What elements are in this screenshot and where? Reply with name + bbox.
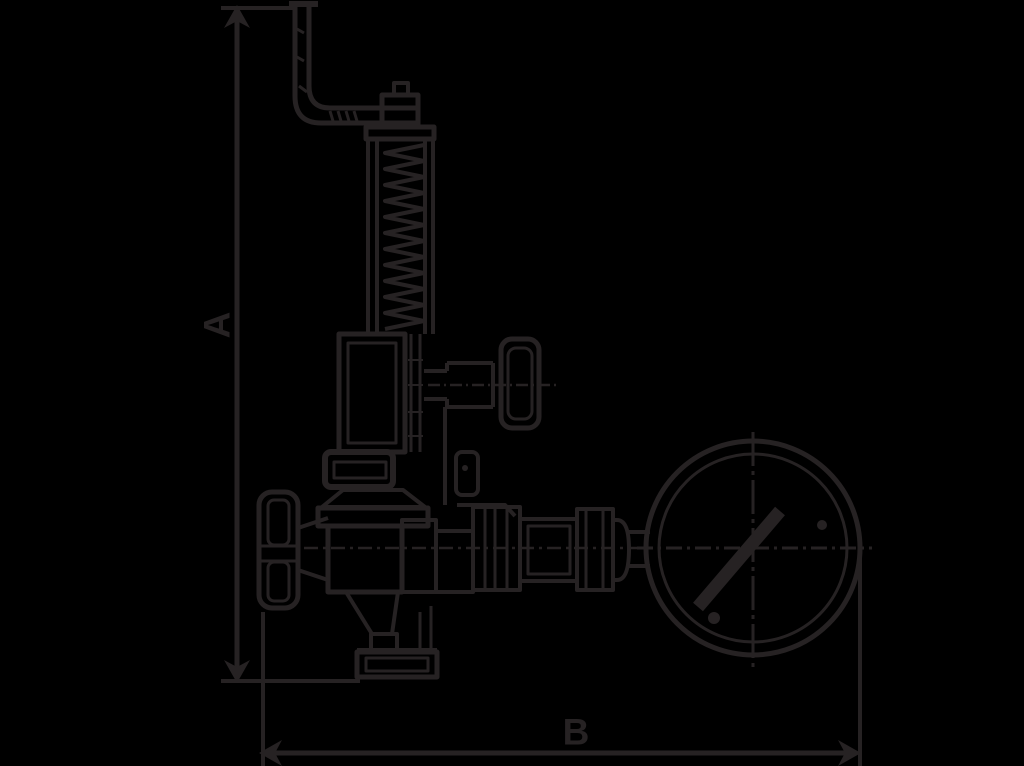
valve-body bbox=[328, 520, 473, 677]
gauge-socket bbox=[613, 520, 629, 580]
adjuster-lock-inner bbox=[334, 462, 386, 478]
bonnet-flange bbox=[318, 508, 428, 526]
pressure-gauge bbox=[637, 432, 872, 668]
drain-passage bbox=[420, 606, 431, 650]
mid-fitting-inner bbox=[528, 526, 570, 574]
yoke-top-plate bbox=[366, 127, 434, 139]
gauge-nut-ribs bbox=[586, 511, 603, 588]
pipe-thread-marks bbox=[330, 111, 357, 121]
handwheel-rim bbox=[259, 492, 298, 608]
gauge-pin-dot bbox=[817, 520, 827, 530]
body-outlet-boss bbox=[436, 531, 473, 592]
outlet-flange bbox=[357, 652, 437, 677]
dimension-a-label: A bbox=[196, 312, 237, 339]
lower-housing-inner bbox=[348, 343, 396, 443]
spindle bbox=[411, 334, 420, 452]
technical-drawing-canvas: A B bbox=[0, 0, 1024, 766]
test-branch bbox=[424, 339, 557, 516]
gauge-needle bbox=[698, 511, 780, 607]
knob-inner bbox=[508, 348, 532, 419]
relief-lever-pipe bbox=[289, 4, 420, 123]
gauge-nut bbox=[577, 509, 613, 590]
branch-elbow-dot bbox=[462, 465, 468, 471]
outlet-neck bbox=[371, 634, 397, 650]
dimension-b-label: B bbox=[563, 711, 590, 752]
safety-valve-dimension-drawing: A B bbox=[0, 0, 1024, 766]
body-block bbox=[328, 526, 402, 592]
spring-housing bbox=[339, 83, 434, 452]
dimension-b: B bbox=[259, 556, 861, 766]
body-bottom-taper bbox=[346, 592, 398, 634]
body-right-step bbox=[402, 520, 436, 592]
handwheel-hub bbox=[259, 546, 298, 561]
bonnet-skirt bbox=[322, 490, 425, 507]
outlet-flange-inner bbox=[366, 658, 428, 671]
handwheel-spoke-top bbox=[268, 500, 289, 545]
pipe-hatch-marks bbox=[297, 29, 307, 92]
handwheel-spoke-bottom bbox=[268, 562, 289, 601]
branch-elbow bbox=[456, 452, 478, 495]
coil-spring bbox=[385, 145, 424, 329]
bonnet bbox=[318, 452, 428, 526]
pipe-inner-wall bbox=[309, 4, 420, 108]
gauge-stop-dot bbox=[708, 612, 720, 624]
